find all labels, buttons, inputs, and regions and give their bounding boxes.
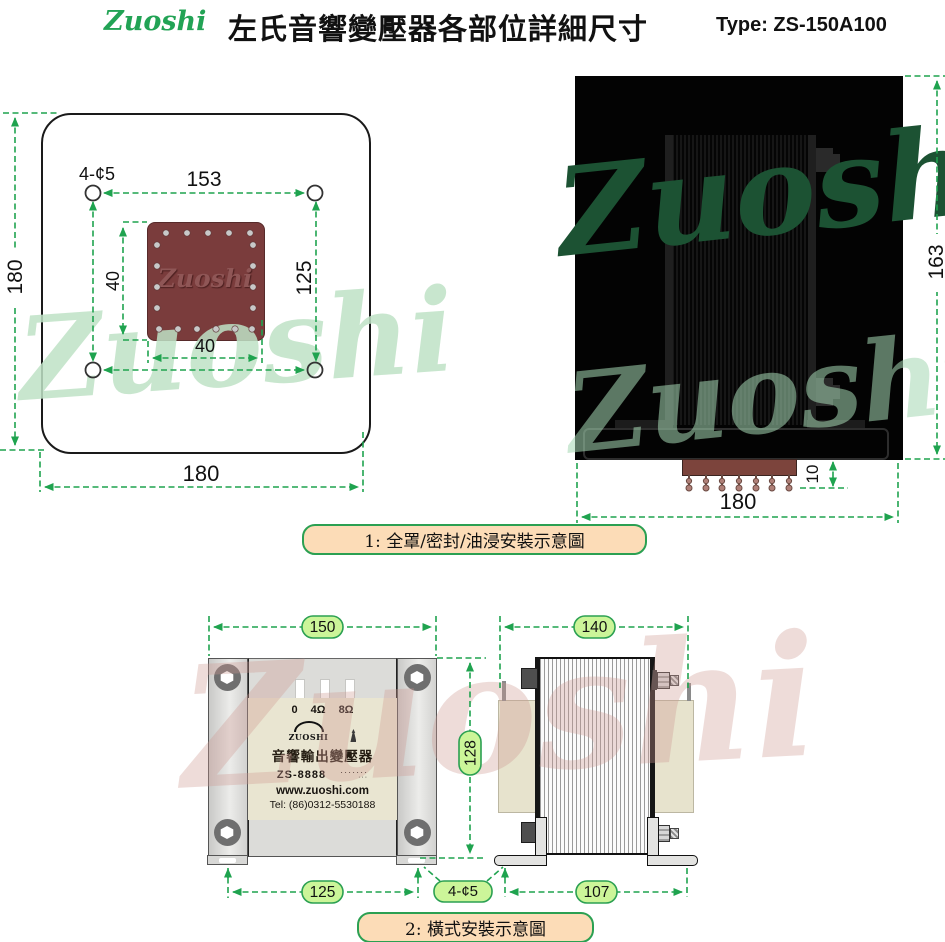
terminal-pins [686, 474, 792, 491]
product-label: 0 4Ω 8Ω ZUOSHI 音響輸出變壓器 ZS-8888 ·········… [248, 698, 397, 820]
core-end-plate [665, 135, 673, 425]
label-backer [5, 248, 24, 306]
dim-107: 107 [584, 884, 610, 901]
terminal-8ohm: 8Ω [339, 704, 354, 716]
mount-stud [502, 681, 506, 701]
bolt-shadow [816, 148, 833, 172]
bolt-hex [410, 671, 424, 684]
model-number: ZS-8888 [277, 769, 326, 781]
bolt-hole [214, 664, 241, 691]
bolt-hex [410, 826, 424, 839]
mount-foot [396, 855, 437, 865]
l-bracket [647, 817, 659, 858]
bolt-hole [404, 819, 431, 846]
bolt-hole [404, 664, 431, 691]
bolt-nut [657, 672, 670, 689]
technical-drawing-page: Zuoshi 左氏音響變壓器各部位詳細尺寸 Type: ZS-150A100 Z… [0, 0, 945, 942]
crown-icon [294, 721, 324, 732]
side-view [494, 657, 698, 867]
label-backer [927, 234, 945, 292]
bolt-shadow [816, 378, 833, 406]
lamination-stack [540, 657, 650, 855]
l-bracket-foot [647, 855, 698, 866]
dim-140: 140 [582, 619, 608, 636]
dot-marks: ·········· [340, 770, 368, 780]
badge-brand-text: ZUOSHI [289, 732, 329, 742]
bolt-shadow [833, 154, 840, 167]
bracket-foot-shadow [807, 420, 865, 428]
page-title: 左氏音響變壓器各部位詳細尺寸 [228, 6, 648, 48]
core-stack-shadow [672, 135, 808, 425]
dim-180-left: 180 [4, 259, 27, 294]
dim-150: 150 [310, 619, 336, 636]
sealed-transformer-view [575, 76, 903, 460]
telephone-text: Tel: (86)0312-5530188 [270, 799, 376, 811]
terminal-strip [682, 459, 797, 476]
bolt-hole [214, 819, 241, 846]
terminal-block [521, 668, 538, 689]
brand-badge: ZUOSHI [289, 721, 329, 742]
hole-note: 4-¢5 [448, 883, 478, 900]
terminal-slot [320, 679, 330, 700]
brand-logo: Zuoshi [104, 6, 206, 37]
terminal-slot [345, 679, 355, 700]
bolt-hex [220, 826, 234, 839]
plate-embossed-logo: Zuoshi [147, 264, 263, 293]
dim-180-bottom: 180 [183, 461, 220, 486]
terminal-0: 0 [292, 704, 298, 716]
foot-slot [408, 858, 425, 863]
bracket-foot-shadow [615, 420, 673, 428]
dim-125-span: 125 [310, 884, 336, 901]
bobbin-right [654, 700, 694, 813]
bobbin-left [498, 700, 536, 813]
terminal-slot [295, 679, 305, 700]
bolt-thread [670, 675, 679, 686]
bolt-thread [670, 828, 679, 839]
mount-foot [207, 855, 248, 865]
bolt-hex [220, 671, 234, 684]
mount-stud [687, 683, 691, 701]
terminal-markings: 0 4Ω 8Ω [292, 704, 354, 716]
caption-2: 2: 橫式安裝示意圖 [357, 912, 594, 942]
l-bracket-foot [494, 855, 547, 866]
dim-10: 10 [803, 465, 822, 484]
dim-180-sealed: 180 [720, 489, 757, 514]
bolt-shadow [833, 385, 840, 399]
dim-128: 128 [463, 740, 480, 766]
caption-1: 1: 全罩/密封/油浸安裝示意圖 [302, 524, 647, 555]
product-name: 音響輸出變壓器 [272, 745, 374, 765]
oil-tray-outline [583, 428, 889, 460]
core-end-plate [808, 135, 816, 425]
l-bracket [535, 817, 547, 858]
terminal-4ohm: 4Ω [311, 704, 326, 716]
dim-163: 163 [925, 244, 945, 279]
front-view: 0 4Ω 8Ω ZUOSHI 音響輸出變壓器 ZS-8888 ·········… [208, 658, 437, 857]
website-text: www.zuoshi.com [276, 785, 369, 797]
type-label: Type: ZS-150A100 [716, 14, 887, 37]
seal-stamp-icon [350, 729, 356, 742]
foot-slot [219, 858, 236, 863]
